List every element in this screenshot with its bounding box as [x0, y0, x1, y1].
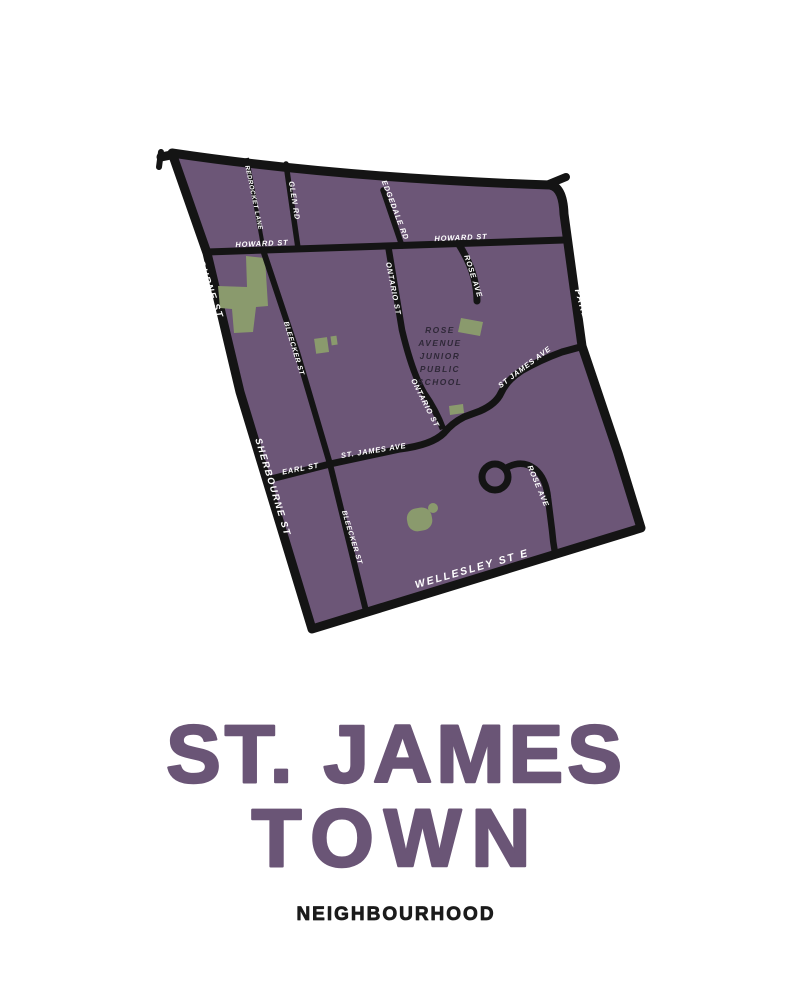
poster-title-line1: ST. JAMES: [166, 709, 626, 800]
school-label-line-5: SCHOOL: [418, 377, 463, 387]
poster-subtitle: NEIGHBOURHOOD: [296, 904, 495, 925]
school-label-line-2: AVENUE: [417, 338, 461, 348]
school-label-line-3: JUNIOR: [420, 351, 461, 361]
park-small-bleecker-2: [330, 336, 337, 346]
map-poster: BLOOR ST E SHERBOURNE ST SHERBOURNE ST P…: [0, 0, 792, 1008]
park-small-bleecker-1: [314, 337, 329, 354]
poster-title-line2: TOWN: [251, 793, 540, 884]
school-label-line-4: PUBLIC: [420, 364, 460, 374]
school-label-line-1: ROSE: [425, 325, 455, 335]
